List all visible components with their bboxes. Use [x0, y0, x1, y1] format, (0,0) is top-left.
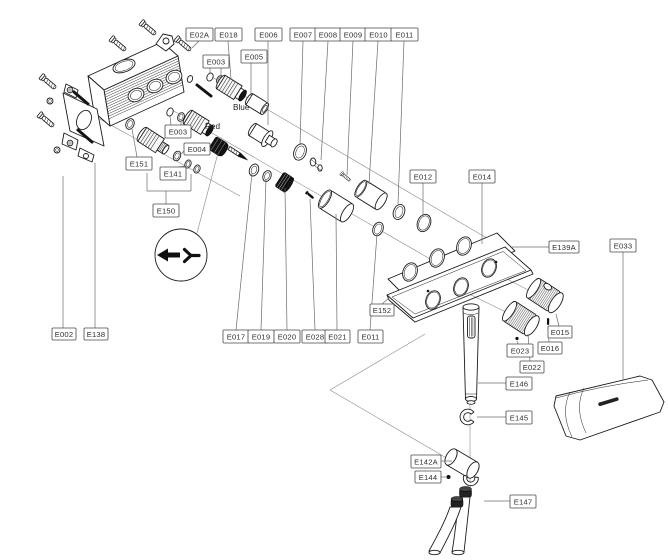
part-label-E033-27: E033 — [610, 239, 636, 252]
svg-text:E014: E014 — [473, 172, 492, 181]
leader-line-E02A — [192, 41, 199, 48]
part-label-E138-16: E138 — [84, 328, 108, 340]
part-label-E005-9: E005 — [241, 50, 267, 63]
svg-text:E009: E009 — [344, 30, 363, 39]
svg-text:E003: E003 — [207, 57, 226, 66]
part-label-E145-33: E145 — [506, 411, 532, 424]
svg-text:E005: E005 — [245, 52, 264, 61]
svg-text:E011: E011 — [396, 30, 414, 39]
part-label-E021-21: E021 — [325, 330, 350, 343]
svg-text:E150: E150 — [157, 206, 176, 215]
svg-text:E010: E010 — [369, 30, 388, 39]
grub-screw-e016 — [547, 318, 549, 325]
part-label-E010-6: E010 — [365, 28, 392, 41]
dark-screw-e028 — [305, 191, 315, 200]
hand-shower-e146 — [463, 304, 479, 405]
svg-text:E02A: E02A — [190, 30, 210, 39]
svg-text:E007: E007 — [294, 30, 313, 39]
leader-line-E003 — [170, 116, 171, 125]
knob-e022 — [500, 299, 542, 338]
cup-e010 — [353, 178, 390, 211]
leader-line-E151 — [132, 129, 137, 157]
part-label-E011-22: E011 — [358, 330, 383, 343]
part-label-E150-14: E150 — [153, 204, 179, 217]
leader-line-E010 — [369, 41, 378, 184]
knob-e015 — [524, 276, 566, 315]
built-in-box-e033 — [554, 376, 664, 440]
svg-text:E151: E151 — [130, 159, 149, 168]
svg-text:E145: E145 — [510, 413, 529, 422]
part-label-E139A-26: E139A — [549, 241, 579, 253]
leader-line-E021 — [336, 214, 337, 330]
part-label-E142A-34: E142A — [411, 455, 441, 468]
part-label-E012-24: E012 — [410, 170, 436, 183]
leader-line-E011 — [398, 41, 404, 204]
part-label-E003-10: E003 — [165, 125, 191, 138]
part-label-E152-23: E152 — [370, 304, 394, 316]
parts-diagram-page: E02AE018E006E007E008E009E010E011E003E005… — [0, 0, 668, 560]
svg-text:E003: E003 — [169, 127, 188, 136]
svg-text:E004: E004 — [188, 145, 207, 154]
annotation-blue: Blue — [233, 103, 250, 112]
svg-text:E021: E021 — [328, 332, 347, 341]
svg-text:E147: E147 — [514, 497, 533, 506]
leader-line-E020 — [285, 188, 287, 330]
part-label-E007-3: E007 — [290, 28, 316, 41]
part-label-E019-18: E019 — [248, 330, 274, 343]
leader-line-E017 — [236, 173, 252, 330]
detail-magnifier — [155, 229, 207, 281]
screw — [109, 35, 128, 52]
part-label-E020-19: E020 — [274, 330, 300, 343]
svg-text:E002: E002 — [55, 330, 74, 339]
svg-text:E141: E141 — [164, 169, 183, 178]
part-label-E006-2: E006 — [255, 28, 282, 41]
dark-screw — [197, 85, 211, 96]
svg-text:E139A: E139A — [552, 243, 577, 252]
screw-e009 — [340, 171, 352, 182]
screw — [39, 73, 58, 90]
part-label-E028-20: E028 — [302, 330, 328, 343]
leader-line-E009 — [347, 41, 353, 175]
leader-line-E015 — [556, 314, 559, 326]
part-label-E02A-0: E02A — [186, 28, 213, 41]
screw — [139, 19, 158, 36]
cartridge-e006 — [246, 120, 281, 151]
svg-text:E138: E138 — [87, 330, 106, 339]
svg-text:E006: E006 — [259, 30, 278, 39]
leader-line-E008 — [321, 41, 328, 160]
leader-line-E019 — [261, 179, 266, 330]
svg-text:E146: E146 — [510, 379, 529, 388]
part-label-E023-30: E023 — [507, 344, 533, 357]
svg-text:E028: E028 — [306, 332, 325, 341]
part-label-E008-4: E008 — [315, 28, 341, 41]
grub-screw-e023 — [515, 337, 518, 340]
shower-hoses-e147 — [429, 487, 472, 555]
part-label-E018-1: E018 — [215, 28, 242, 41]
part-label-E151-12: E151 — [126, 157, 152, 170]
svg-text:E019: E019 — [252, 332, 271, 341]
svg-text:E012: E012 — [414, 172, 433, 181]
part-label-E015-28: E015 — [548, 326, 572, 338]
part-label-E147-36: E147 — [510, 495, 536, 508]
part-label-E014-25: E014 — [469, 170, 495, 183]
leader-line-E028 — [310, 199, 315, 330]
svg-text:E016: E016 — [541, 344, 560, 353]
part-label-E141-13: E141 — [160, 167, 186, 180]
svg-text:E020: E020 — [278, 332, 297, 341]
part-label-E022-31: E022 — [520, 361, 544, 373]
exploded-diagram-svg: E02AE018E006E007E008E009E010E011E003E005… — [0, 0, 668, 560]
shower-bracket-e142a — [442, 447, 481, 486]
svg-text:E022: E022 — [523, 363, 542, 372]
part-label-E146-32: E146 — [506, 377, 532, 390]
part-label-E011-7: E011 — [391, 28, 418, 41]
part-label-E016-29: E016 — [538, 342, 562, 354]
svg-text:E015: E015 — [551, 328, 570, 337]
part-label-E009-5: E009 — [340, 28, 366, 41]
svg-text:E152: E152 — [373, 306, 392, 315]
annotation-red: Red — [205, 122, 220, 131]
part-label-E144-35: E144 — [415, 471, 441, 483]
svg-text:E144: E144 — [419, 473, 438, 482]
bracket-screw-e144 — [447, 475, 451, 479]
svg-text:E017: E017 — [227, 332, 246, 341]
connector-e008 — [310, 158, 322, 171]
svg-text:E011: E011 — [362, 332, 380, 341]
dark-cap — [208, 136, 230, 157]
part-label-E003-8: E003 — [203, 55, 229, 68]
svg-text:E033: E033 — [614, 241, 633, 250]
part-label-E017-17: E017 — [223, 330, 249, 343]
svg-text:E008: E008 — [319, 30, 338, 39]
svg-text:E023: E023 — [511, 346, 530, 355]
screw — [37, 111, 56, 128]
svg-text:E142A: E142A — [414, 457, 439, 466]
leader-line-E152 — [382, 297, 390, 304]
retaining-clip-e145 — [460, 409, 474, 425]
part-label-E004-11: E004 — [184, 143, 210, 155]
leader-line-E023 — [517, 341, 518, 344]
part-label-E002-15: E002 — [52, 328, 76, 340]
svg-text:E018: E018 — [219, 30, 238, 39]
